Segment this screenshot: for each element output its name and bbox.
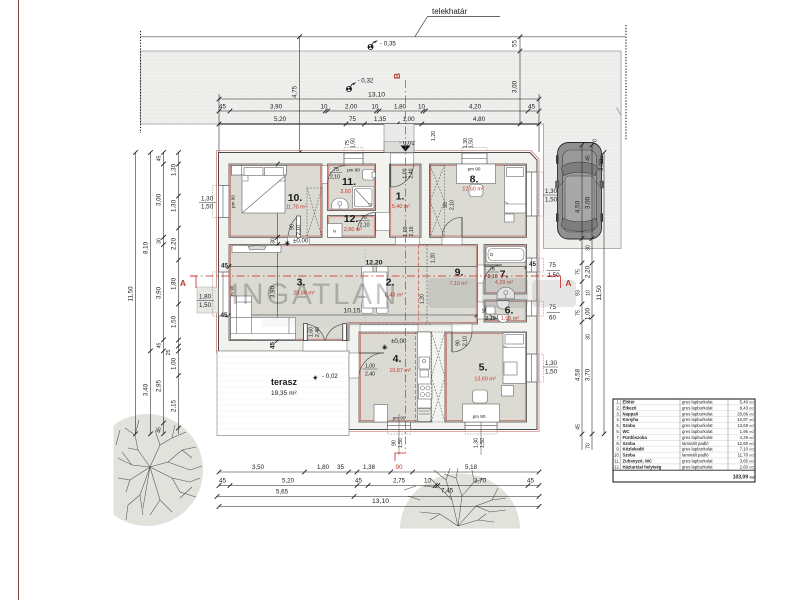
svg-text:10: 10 [586,290,592,296]
svg-text:laminált padló: laminált padló [682,441,709,446]
svg-text:telekhatár: telekhatár [432,7,467,16]
svg-text:M: M [333,230,336,234]
svg-text:5,20: 5,20 [274,116,287,123]
svg-text:5,65: 5,65 [276,489,289,496]
svg-text:3,50: 3,50 [252,464,265,471]
svg-text:Zuhanyzó, WC: Zuhanyzó, WC [623,459,653,464]
svg-text:gres lapburkolat: gres lapburkolat [682,447,713,452]
svg-text:3,40: 3,40 [143,383,150,396]
svg-text:5,18: 5,18 [465,464,478,471]
svg-text:±0,00: ±0,00 [391,338,407,345]
svg-text:1,50: 1,50 [351,138,357,148]
svg-text:pm 90: pm 90 [231,195,236,208]
svg-text:1,00: 1,00 [403,116,416,123]
svg-text:3.: 3. [616,411,620,416]
svg-text:13,10: 13,10 [368,92,385,99]
svg-text:1,50: 1,50 [480,438,486,448]
svg-text:20,86: 20,86 [737,411,748,416]
svg-text:A: A [180,278,186,288]
svg-text:1,30: 1,30 [474,438,480,448]
svg-text:gres lapburkolat: gres lapburkolat [682,429,713,434]
svg-text:25: 25 [166,350,172,356]
svg-text:m2: m2 [750,442,755,446]
svg-text:m2: m2 [750,412,755,416]
svg-text:45: 45 [219,478,226,485]
svg-text:2,40: 2,40 [315,327,321,337]
svg-text:4.: 4. [393,353,402,365]
svg-text:gres lapburkolat: gres lapburkolat [682,459,713,464]
svg-text:5,40 m²: 5,40 m² [392,204,410,210]
svg-text:1,50: 1,50 [548,272,561,279]
svg-text:35: 35 [337,464,344,471]
svg-text:2,95: 2,95 [156,379,163,392]
svg-text:4,20: 4,20 [469,104,482,111]
svg-text:8.: 8. [470,174,479,186]
svg-text:gres lapburkolat: gres lapburkolat [682,464,713,469]
svg-text:m2: m2 [750,465,755,469]
svg-text:1,95 m²: 1,95 m² [501,316,519,322]
svg-text:45: 45 [157,156,163,162]
svg-text:45: 45 [221,312,228,319]
svg-text:gres lapburkolat: gres lapburkolat [682,423,713,428]
svg-text:WC: WC [623,429,630,434]
svg-text:75: 75 [489,267,495,273]
svg-text:gres lapburkolat: gres lapburkolat [682,405,713,410]
svg-text:45: 45 [576,424,582,430]
svg-text:90: 90 [396,464,403,471]
svg-text:30: 30 [586,334,592,340]
svg-text:70: 70 [593,139,599,145]
svg-text:10.: 10. [288,192,303,204]
svg-text:m2: m2 [750,401,755,405]
svg-text:Közlekedő: Közlekedő [623,447,645,452]
svg-text:60: 60 [549,315,556,322]
svg-text:3,60: 3,60 [340,189,351,195]
svg-text:4,80: 4,80 [473,116,486,123]
svg-text:12,60 m²: 12,60 m² [462,187,483,193]
svg-text:Nappali: Nappali [623,411,639,416]
svg-text:103,09: 103,09 [733,475,749,481]
svg-text:m2: m2 [750,424,755,428]
svg-text:1,80: 1,80 [394,104,407,111]
svg-text:75: 75 [576,310,582,316]
svg-text:45: 45 [586,155,592,161]
svg-text:1,50: 1,50 [469,138,475,148]
svg-text:45: 45 [157,427,163,433]
svg-text:45: 45 [221,263,228,270]
svg-text:1,35: 1,35 [374,116,387,123]
svg-text:2,15: 2,15 [171,399,178,412]
svg-text:30: 30 [157,238,163,244]
svg-text:4.: 4. [616,417,620,422]
svg-text:gres lapburkolat: gres lapburkolat [682,435,713,440]
svg-text:5.: 5. [616,423,620,428]
svg-text:Előtér: Előtér [623,400,636,405]
svg-text:5,20: 5,20 [282,478,295,485]
svg-text:3,00: 3,00 [156,193,163,206]
svg-text:3,00: 3,00 [598,158,605,171]
svg-text:45: 45 [270,342,277,349]
svg-text:1.: 1. [396,191,405,203]
svg-text:11,70: 11,70 [738,453,749,458]
svg-text:75: 75 [576,269,582,275]
svg-text:3,60: 3,60 [740,459,749,464]
svg-text:3,00: 3,00 [512,80,519,93]
svg-text:93: 93 [576,290,582,296]
svg-text:Szoba: Szoba [623,441,636,446]
svg-text:2,40: 2,40 [409,168,415,178]
svg-text:11.: 11. [614,459,620,464]
svg-text:- 0,32: - 0,32 [358,78,374,85]
svg-text:75: 75 [361,215,367,221]
svg-text:Fürdőszoba: Fürdőszoba [623,435,648,440]
svg-text:1,60: 1,60 [309,327,315,337]
svg-text:1,80: 1,80 [171,277,178,290]
svg-text:1,20: 1,20 [431,253,437,263]
svg-text:1,50: 1,50 [201,204,214,211]
svg-text:1,30: 1,30 [545,360,558,367]
svg-text:12,60: 12,60 [737,441,748,446]
svg-text:m2: m2 [750,454,755,458]
svg-text:1,50: 1,50 [545,197,558,204]
svg-text:9.: 9. [616,447,620,452]
svg-text:19,35 m²: 19,35 m² [271,390,297,397]
svg-text:m2: m2 [750,476,755,480]
svg-text:B: B [392,73,402,79]
svg-text:6.: 6. [616,429,620,434]
svg-text:1.: 1. [616,400,620,405]
svg-text:45: 45 [527,478,534,485]
svg-text:12,20: 12,20 [365,260,382,267]
svg-text:Konyha: Konyha [623,417,639,422]
svg-text:10.: 10. [614,453,620,458]
svg-text:1,95: 1,95 [740,429,749,434]
svg-text:2,00: 2,00 [345,104,358,111]
svg-text:2,10: 2,10 [330,175,340,181]
svg-text:m2: m2 [750,406,755,410]
svg-text:pm 90: pm 90 [468,167,481,172]
svg-text:11,50: 11,50 [128,286,135,302]
svg-text:3,70: 3,70 [474,478,487,485]
svg-text:1,00: 1,00 [585,307,592,320]
svg-text:10,87: 10,87 [737,417,748,422]
svg-text:1,00: 1,00 [365,364,375,370]
svg-text:75: 75 [549,262,556,269]
svg-text:1,50: 1,50 [199,302,212,309]
svg-text:4,29: 4,29 [740,435,749,440]
svg-text:4,75: 4,75 [292,85,299,98]
svg-text:1,50: 1,50 [171,315,178,328]
svg-text:7,10: 7,10 [740,447,749,452]
svg-text:12.: 12. [344,213,359,225]
svg-text:2,40: 2,40 [365,372,375,378]
svg-text:m2: m2 [750,430,755,434]
svg-text:1,20: 1,20 [420,294,426,304]
svg-text:11,70 m²: 11,70 m² [286,205,307,211]
svg-text:1,20: 1,20 [431,131,437,141]
svg-text:2.: 2. [616,405,620,410]
svg-text:1,50: 1,50 [545,369,558,376]
svg-text:1,30: 1,30 [545,188,558,195]
svg-text:8.: 8. [616,441,620,446]
svg-text:3,90: 3,90 [270,104,283,111]
svg-text:2,10: 2,10 [296,225,302,235]
svg-text:3,90: 3,90 [156,286,163,299]
svg-text:12.: 12. [614,464,620,469]
svg-text:1,00: 1,00 [171,357,178,370]
svg-text:90: 90 [456,340,462,346]
svg-text:gres lapburkolat: gres lapburkolat [682,411,713,416]
svg-text:9.: 9. [455,267,464,279]
svg-text:5,40: 5,40 [740,400,749,405]
svg-text:1,30: 1,30 [201,196,214,203]
svg-text:10,87 m²: 10,87 m² [389,368,410,374]
svg-text:7,45: 7,45 [441,488,454,495]
svg-text:70: 70 [586,443,592,449]
svg-text:INGATLAN: INGATLAN [231,278,399,311]
svg-text:1,30: 1,30 [171,199,178,212]
svg-text:11,50: 11,50 [596,285,603,301]
svg-text:2,20: 2,20 [171,237,178,250]
svg-text:laminált padló: laminált padló [682,453,709,458]
svg-text:Szoba: Szoba [623,423,636,428]
svg-text:2,10: 2,10 [463,336,469,346]
svg-text:55: 55 [512,40,519,47]
svg-text:Étkező: Étkező [623,405,637,410]
svg-text:8,43: 8,43 [740,405,749,410]
svg-text:m2: m2 [750,436,755,440]
svg-text:2,75: 2,75 [393,478,406,485]
svg-text:7.: 7. [616,435,620,440]
svg-text:2,10: 2,10 [409,226,415,236]
svg-text:45: 45 [529,261,536,268]
svg-text:Szoba: Szoba [623,453,636,458]
svg-text:m2: m2 [750,418,755,422]
svg-text:90: 90 [443,202,449,208]
svg-text:A: A [565,278,571,288]
svg-text:2,10: 2,10 [450,200,456,210]
svg-text:13,69 m²: 13,69 m² [474,377,495,383]
svg-text:4,58: 4,58 [575,368,582,381]
svg-text:2,60 m²: 2,60 m² [344,227,362,233]
svg-text:4,50: 4,50 [575,200,582,213]
svg-text:10: 10 [424,478,431,485]
svg-text:Háztartási helyiség: Háztartási helyiség [623,464,662,469]
svg-text:2,10: 2,10 [486,316,496,322]
svg-text:2,60: 2,60 [740,464,749,469]
svg-text:8,10: 8,10 [143,241,150,254]
svg-text:- 0,02: - 0,02 [322,373,338,380]
svg-text:gres lapburkolat: gres lapburkolat [682,417,713,422]
svg-text:pm 90: pm 90 [473,414,486,419]
svg-text:13,69: 13,69 [737,423,748,428]
svg-text:5.: 5. [479,362,488,374]
svg-text:1,30: 1,30 [171,163,178,176]
svg-text:±0,00: ±0,00 [293,238,309,245]
svg-text:30: 30 [271,238,277,244]
svg-text:90: 90 [290,224,296,230]
svg-text:m2: m2 [750,448,755,452]
svg-text:1,38: 1,38 [363,464,376,471]
svg-text:3,70: 3,70 [585,368,592,381]
svg-text:11.: 11. [342,176,356,188]
svg-text:1,80: 1,80 [199,294,212,301]
svg-text:75: 75 [333,167,339,173]
svg-text:gres lapburkolat: gres lapburkolat [682,400,713,405]
svg-text:90: 90 [392,440,398,446]
svg-text:30: 30 [586,245,592,251]
svg-text:75: 75 [349,116,356,123]
svg-text:- 0,35: - 0,35 [380,41,396,48]
svg-text:terasz: terasz [271,377,298,387]
svg-text:45: 45 [157,343,163,349]
svg-text:1,50: 1,50 [398,438,404,448]
svg-text:2,20: 2,20 [585,265,592,278]
svg-text:13,10: 13,10 [372,498,389,505]
svg-text:1,80: 1,80 [317,464,330,471]
svg-text:m2: m2 [750,460,755,464]
svg-text:pm 90: pm 90 [347,168,360,173]
svg-text:3,00: 3,00 [585,196,592,209]
